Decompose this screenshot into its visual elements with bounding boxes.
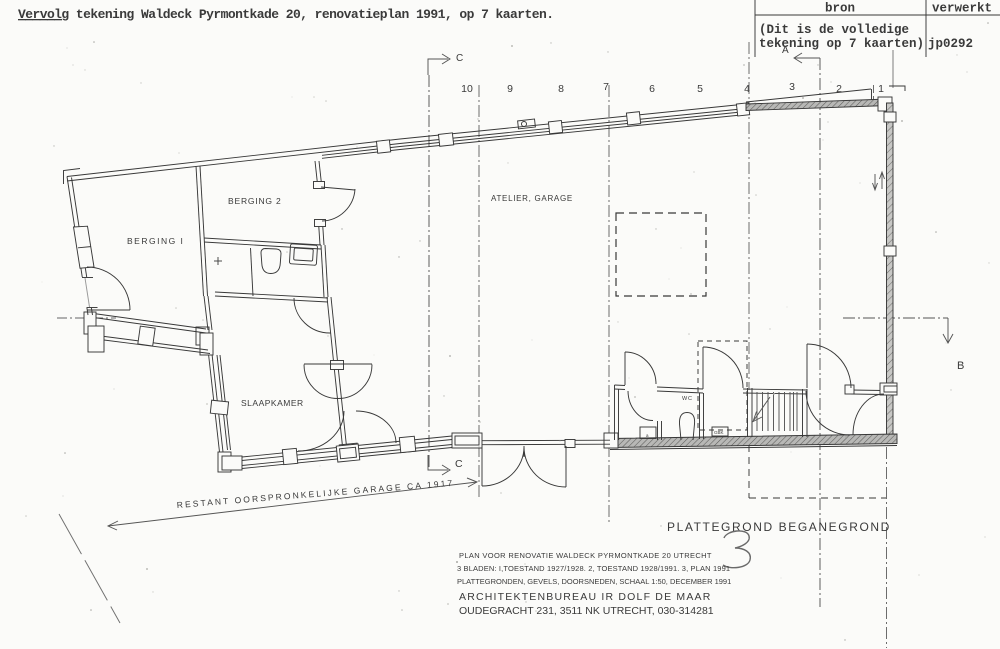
svg-text:PLAN VOOR RENOVATIE WALDECK PY: PLAN VOOR RENOVATIE WALDECK PYRMONTKADE …	[459, 551, 712, 560]
svg-text:OUDEGRACHT 231, 3511 NK UTRECH: OUDEGRACHT 231, 3511 NK UTRECHT, 030-314…	[459, 605, 714, 617]
svg-text:WC: WC	[682, 396, 693, 402]
svg-text:bron: bron	[825, 2, 855, 16]
svg-text:B: B	[957, 360, 964, 372]
svg-text:ARCHITEKTENBUREAU IR DOLF DE M: ARCHITEKTENBUREAU IR DOLF DE MAAR	[459, 591, 712, 603]
svg-text:8: 8	[558, 83, 564, 95]
svg-text:SLAAPKAMER: SLAAPKAMER	[241, 398, 304, 408]
svg-text:RESTANT OORSPRONKELIJKE GARAGE: RESTANT OORSPRONKELIJKE GARAGE CA 1917	[176, 478, 454, 510]
svg-text:a: a	[646, 433, 649, 438]
svg-text:jp0292: jp0292	[928, 37, 973, 51]
svg-text:PLATTEGROND BEGANEGROND: PLATTEGROND BEGANEGROND	[667, 520, 891, 534]
svg-text:C: C	[456, 53, 463, 64]
svg-text:GBK: GBK	[714, 430, 724, 435]
svg-text:Vervolg tekening Waldeck Pyrmo: Vervolg tekening Waldeck Pyrmontkade 20,…	[18, 7, 554, 22]
svg-text:6: 6	[649, 83, 655, 95]
svg-text:10: 10	[461, 83, 473, 95]
svg-text:BERGING I: BERGING I	[127, 236, 184, 246]
svg-text:9: 9	[507, 83, 513, 95]
svg-text:BERGING 2: BERGING 2	[228, 196, 282, 206]
svg-text:ATELIER, GARAGE: ATELIER, GARAGE	[491, 194, 573, 203]
svg-text:7: 7	[603, 81, 609, 93]
svg-text:PLATTEGRONDEN, GEVELS, DOORSNE: PLATTEGRONDEN, GEVELS, DOORSNEDEN, SCHAA…	[457, 577, 731, 586]
svg-text:2: 2	[836, 83, 842, 95]
svg-text:(Dit is de volledige: (Dit is de volledige	[759, 23, 909, 37]
svg-text:3 BLADEN: I,TOESTAND 1927/1928: 3 BLADEN: I,TOESTAND 1927/1928. 2, TOEST…	[457, 564, 730, 573]
svg-text:5: 5	[697, 83, 703, 95]
svg-text:3: 3	[789, 81, 795, 93]
svg-text:1: 1	[878, 83, 884, 95]
svg-text:verwerkt: verwerkt	[932, 2, 992, 16]
svg-text:A: A	[782, 45, 789, 56]
svg-text:C: C	[455, 458, 463, 470]
